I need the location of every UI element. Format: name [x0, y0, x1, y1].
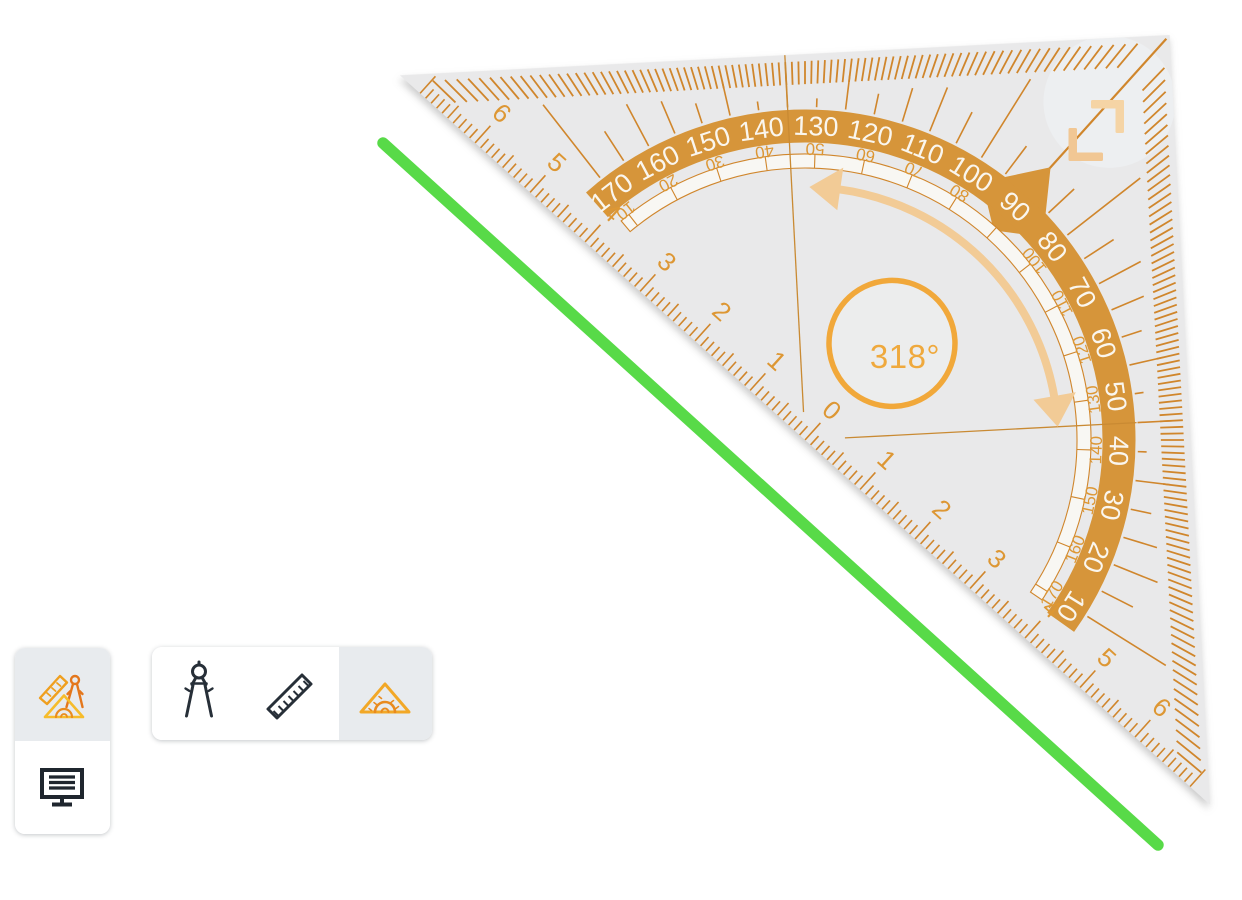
toolbar-left [15, 648, 110, 834]
set-square-icon [355, 671, 415, 717]
compass-icon [177, 660, 221, 728]
monitor-icon [39, 766, 87, 810]
angle-readout: 318° [870, 338, 940, 376]
toolbar-tools [152, 647, 432, 740]
geometry-tools-icon [35, 669, 91, 721]
svg-text:140: 140 [737, 111, 786, 147]
svg-text:50: 50 [805, 139, 825, 159]
ruler-icon [260, 662, 324, 726]
svg-text:40: 40 [754, 141, 775, 162]
ruler-tool-button[interactable] [245, 647, 338, 740]
compass-tool-button[interactable] [152, 647, 245, 740]
svg-text:140: 140 [1086, 436, 1106, 465]
svg-text:60: 60 [854, 144, 876, 167]
geometry-tools-button[interactable] [15, 648, 110, 741]
svg-text:130: 130 [793, 111, 839, 143]
drawing-canvas[interactable]: 1020304050607080901001101201301401501601… [0, 0, 1242, 900]
svg-text:40: 40 [1103, 435, 1134, 466]
board-button[interactable] [15, 741, 110, 834]
svg-text:130: 130 [1082, 384, 1105, 415]
geometry-scene[interactable]: 1020304050607080901001101201301401501601… [0, 0, 1242, 900]
set-square-tool-button[interactable] [339, 647, 432, 740]
